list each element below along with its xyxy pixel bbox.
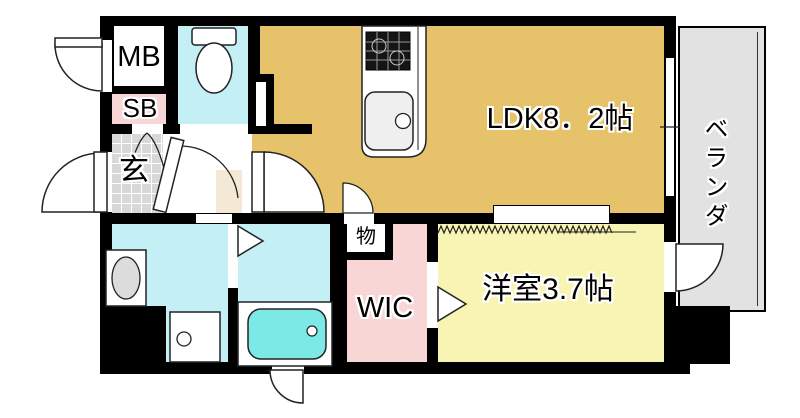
label-storage: 物 <box>348 227 384 248</box>
bath-door-triangle <box>238 226 263 256</box>
toilet-door-arc <box>180 146 238 198</box>
floorplan: MB SB 玄 LDK8．2帖 ベランダ 物 WIC 洋室3.7帖 <box>0 0 800 418</box>
label-western: 洋室3.7帖 <box>430 274 666 306</box>
label-veranda: ベランダ <box>694 84 726 264</box>
mb-door-arc-icon <box>55 38 102 91</box>
label-sb: SB <box>108 95 172 122</box>
bath-exterior-door-arc <box>270 370 303 403</box>
toilet-icon <box>192 28 236 93</box>
entrance-door-arc-icon <box>42 152 107 212</box>
label-genkan: 玄 <box>112 155 156 187</box>
label-ldk: LDK8．2帖 <box>440 104 680 134</box>
kitchen-stove-icon <box>366 32 410 70</box>
storage-door-arc <box>343 183 373 213</box>
washer-pan-icon <box>170 312 220 362</box>
kitchen-sink-icon <box>365 92 413 150</box>
ldk-door-arc-icon <box>252 152 324 212</box>
washbasin-icon <box>106 250 146 306</box>
label-mb: MB <box>112 42 166 72</box>
label-wic: WIC <box>330 293 440 323</box>
bathtub-icon <box>238 302 332 366</box>
